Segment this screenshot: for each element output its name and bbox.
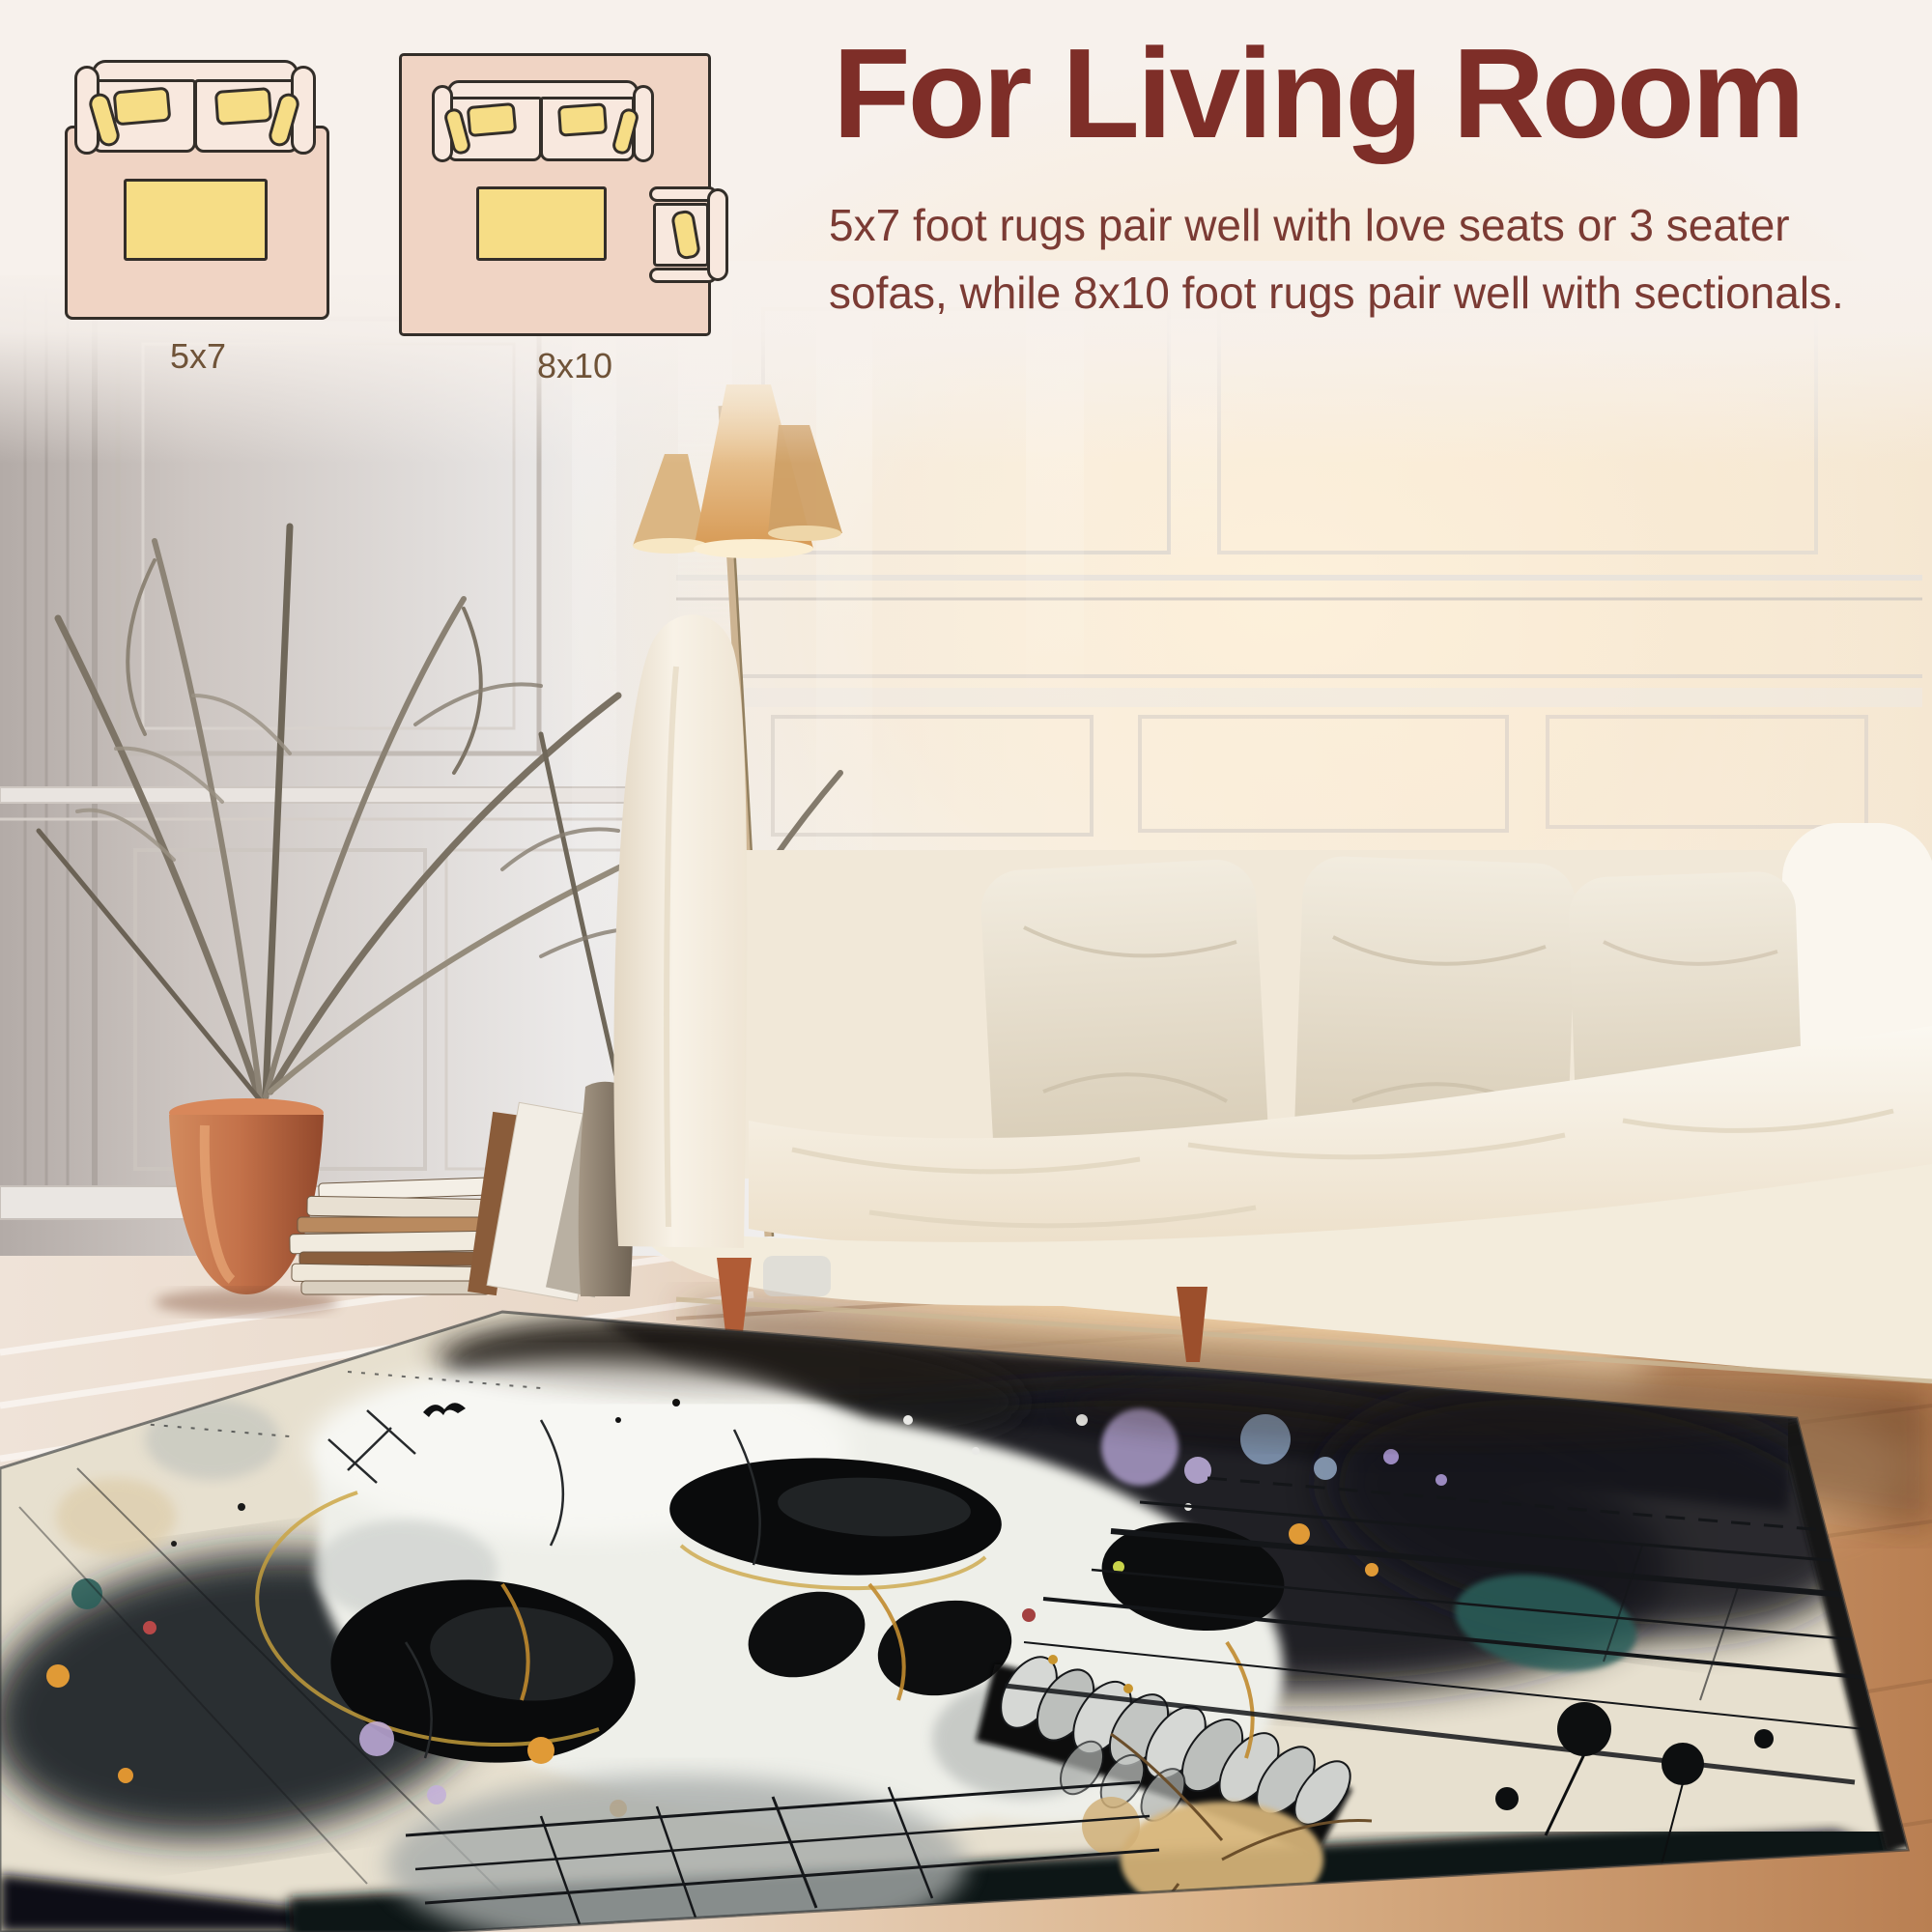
size-label-8x10: 8x10 xyxy=(386,346,763,386)
diagram-coffee-table-2 xyxy=(476,186,607,261)
description-line-2: sofas, while 8x10 foot rugs pair well wi… xyxy=(829,268,1844,318)
page-title: For Living Room xyxy=(833,27,1915,161)
page-description: 5x7 foot rugs pair well with love seats … xyxy=(829,191,1920,327)
rug-size-diagram-5x7: 5x7 xyxy=(53,48,343,382)
size-label-5x7: 5x7 xyxy=(53,336,343,377)
rug-product-infographic: For Living Room 5x7 foot rugs pair well … xyxy=(0,0,1932,1932)
book-stack xyxy=(290,1178,500,1294)
description-line-1: 5x7 foot rugs pair well with love seats … xyxy=(829,200,1790,250)
diagram-coffee-table xyxy=(124,179,268,261)
rug-size-diagram-8x10: 8x10 xyxy=(386,39,763,386)
